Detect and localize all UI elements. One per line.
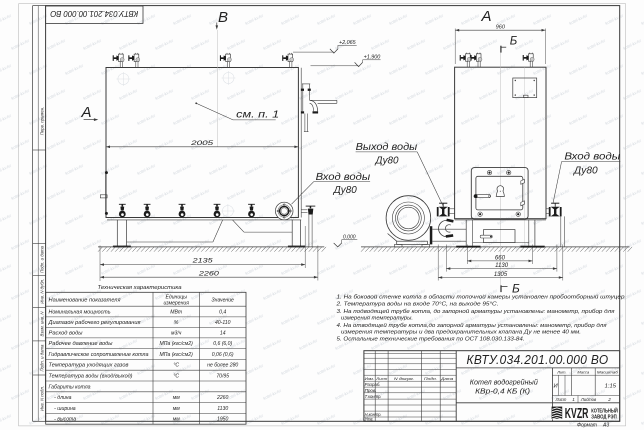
- svg-text:N докум.: N докум.: [394, 376, 414, 381]
- svg-text:Расход воды: Расход воды: [49, 331, 83, 337]
- svg-text:КВТУ.034.201.00.000 ВО: КВТУ.034.201.00.000 ВО: [50, 9, 139, 18]
- svg-text:960: 960: [496, 25, 506, 31]
- svg-text:1: 1: [572, 397, 575, 402]
- svg-text:40-110: 40-110: [215, 320, 231, 326]
- svg-text:Б: Б: [510, 35, 518, 47]
- svg-text:А: А: [481, 8, 492, 25]
- svg-text:Утв.: Утв.: [365, 417, 374, 422]
- svg-text:2005: 2005: [190, 140, 214, 147]
- svg-text:Ду80: Ду80: [333, 185, 357, 196]
- svg-text:Масса: Масса: [577, 370, 590, 375]
- svg-text:70/95: 70/95: [216, 374, 229, 380]
- svg-text:Подп.: Подп.: [424, 376, 437, 381]
- svg-text:Номинальная мощность: Номинальная мощность: [49, 309, 111, 315]
- svg-text:660: 660: [495, 255, 506, 261]
- svg-text:0,6 (6,0): 0,6 (6,0): [213, 341, 232, 347]
- svg-text:КВТУ.034.201.00.000 ВО: КВТУ.034.201.00.000 ВО: [467, 352, 609, 367]
- svg-text:МПа (кгс/см2): МПа (кгс/см2): [160, 341, 194, 347]
- svg-text:Рабочее давление воды: Рабочее давление воды: [49, 341, 113, 347]
- svg-text:1950: 1950: [217, 417, 228, 423]
- svg-text:0.000: 0.000: [343, 234, 356, 240]
- svg-text:м3/ч: м3/ч: [171, 331, 182, 337]
- svg-text:Наименование показателя: Наименование показателя: [49, 298, 121, 304]
- svg-text:мм: мм: [173, 395, 180, 401]
- svg-text:Значение: Значение: [212, 298, 235, 304]
- svg-text:Выход воды: Выход воды: [356, 142, 418, 153]
- svg-text:2260: 2260: [197, 271, 219, 277]
- svg-text:Диапазон рабочего регулировани: Диапазон рабочего регулирования: [47, 320, 140, 326]
- svg-text:14: 14: [220, 331, 226, 337]
- svg-text:Дата: Дата: [440, 376, 454, 381]
- svg-text:Масштаб: Масштаб: [597, 370, 619, 375]
- svg-text:А3: А3: [602, 422, 609, 428]
- svg-text:Изм.: Изм.: [365, 376, 375, 381]
- svg-text:Ду80: Ду80: [573, 165, 598, 176]
- svg-text:Лист: Лист: [555, 397, 567, 402]
- svg-text:Взам. инв. N: Взам. инв. N: [40, 311, 45, 337]
- svg-text:+2.065: +2.065: [339, 40, 357, 46]
- svg-text:Т.контр.: Т.контр.: [365, 394, 382, 399]
- svg-text:МПа (кгс/см2): МПа (кгс/см2): [160, 352, 194, 358]
- svg-text:0,4: 0,4: [219, 309, 226, 315]
- svg-text:Техническая характеристика: Техническая характеристика: [98, 285, 183, 291]
- svg-text:2260: 2260: [216, 395, 228, 401]
- svg-text:- длина: - длина: [49, 395, 72, 401]
- svg-text:Пров.: Пров.: [365, 388, 377, 393]
- svg-text:+1.900: +1.900: [364, 55, 381, 61]
- svg-text:Формат: Формат: [577, 422, 597, 428]
- svg-text:В: В: [218, 9, 228, 26]
- svg-text:ЗАВОД РЭП: ЗАВОД РЭП: [591, 415, 617, 421]
- svg-text:мм: мм: [173, 417, 180, 423]
- svg-text:Листов: Листов: [580, 397, 597, 402]
- svg-text:1130: 1130: [495, 263, 509, 269]
- svg-text:А: А: [81, 104, 92, 121]
- svg-text:измерения: измерения: [163, 301, 189, 307]
- svg-text:1:15: 1:15: [605, 383, 617, 389]
- svg-text:1. На боковой стенке котла в о: 1. На боковой стенке котла в области топ…: [337, 293, 625, 300]
- svg-text:Перв. примен.: Перв. примен.: [40, 107, 45, 136]
- svg-text:%: %: [174, 320, 179, 326]
- svg-text:Вход воды: Вход воды: [564, 152, 621, 163]
- svg-text:2135: 2135: [191, 259, 213, 265]
- svg-text:Подп. и дата: Подп. и дата: [40, 344, 45, 372]
- svg-text:1130: 1130: [217, 406, 228, 412]
- svg-text:- высота: - высота: [49, 417, 77, 423]
- svg-text:Лит.: Лит.: [556, 370, 566, 375]
- svg-text:КВр-0,4 КБ (К): КВр-0,4 КБ (К): [475, 386, 530, 395]
- svg-text:KVZR: KVZR: [565, 406, 589, 422]
- svg-text:Температура уходящих газов: Температура уходящих газов: [49, 363, 129, 369]
- svg-text:Температура воды (вход/выход): Температура воды (вход/выход): [49, 374, 133, 380]
- svg-text:измерения температуры и два пр: измерения температуры и два предохраните…: [341, 330, 581, 336]
- svg-text:2: 2: [607, 397, 611, 402]
- svg-text:2. Температура воды на входе 7: 2. Температура воды на входе 70°С, на вы…: [335, 302, 498, 308]
- svg-text:Инв. N подл.: Инв. N подл.: [40, 386, 45, 411]
- svg-text:Котел водогрейный: Котел водогрейный: [470, 377, 538, 386]
- svg-text:°С: °С: [173, 363, 179, 369]
- svg-text:см. п. 1: см. п. 1: [236, 109, 279, 121]
- svg-text:Разраб.: Разраб.: [365, 382, 381, 387]
- svg-text:Инв. N дубл.: Инв. N дубл.: [40, 279, 45, 304]
- svg-text:°С: °С: [173, 374, 179, 380]
- svg-text:3. На подводящей трубе котла,: 3. На подводящей трубе котла, до запорно…: [337, 308, 615, 315]
- svg-text:КОТЕЛЬНЫЙ: КОТЕЛЬНЫЙ: [591, 407, 618, 415]
- svg-text:Габариты котла: Габариты котла: [49, 384, 91, 390]
- svg-text:1305: 1305: [494, 272, 508, 278]
- svg-text:Гидравлическое сопротивление к: Гидравлическое сопротивление котла: [49, 352, 149, 358]
- svg-text:Лист: Лист: [375, 376, 388, 381]
- svg-text:Подп. и дата: Подп. и дата: [40, 245, 45, 273]
- svg-text:мм: мм: [173, 406, 180, 412]
- svg-text:не более 280: не более 280: [207, 363, 238, 369]
- svg-text:5. Остальные технические требо: 5. Остальные технические требования по О…: [337, 336, 525, 342]
- svg-text:измерения температуры.: измерения температуры.: [341, 315, 413, 321]
- svg-text:4. На отводящей трубе котла,до: 4. На отводящей трубе котла,до запорной …: [337, 322, 607, 329]
- svg-text:- ширина: - ширина: [49, 406, 76, 412]
- svg-text:Ду80: Ду80: [375, 155, 399, 166]
- svg-text:МВт: МВт: [170, 309, 182, 315]
- svg-text:0,06 (0,6): 0,06 (0,6): [212, 352, 234, 358]
